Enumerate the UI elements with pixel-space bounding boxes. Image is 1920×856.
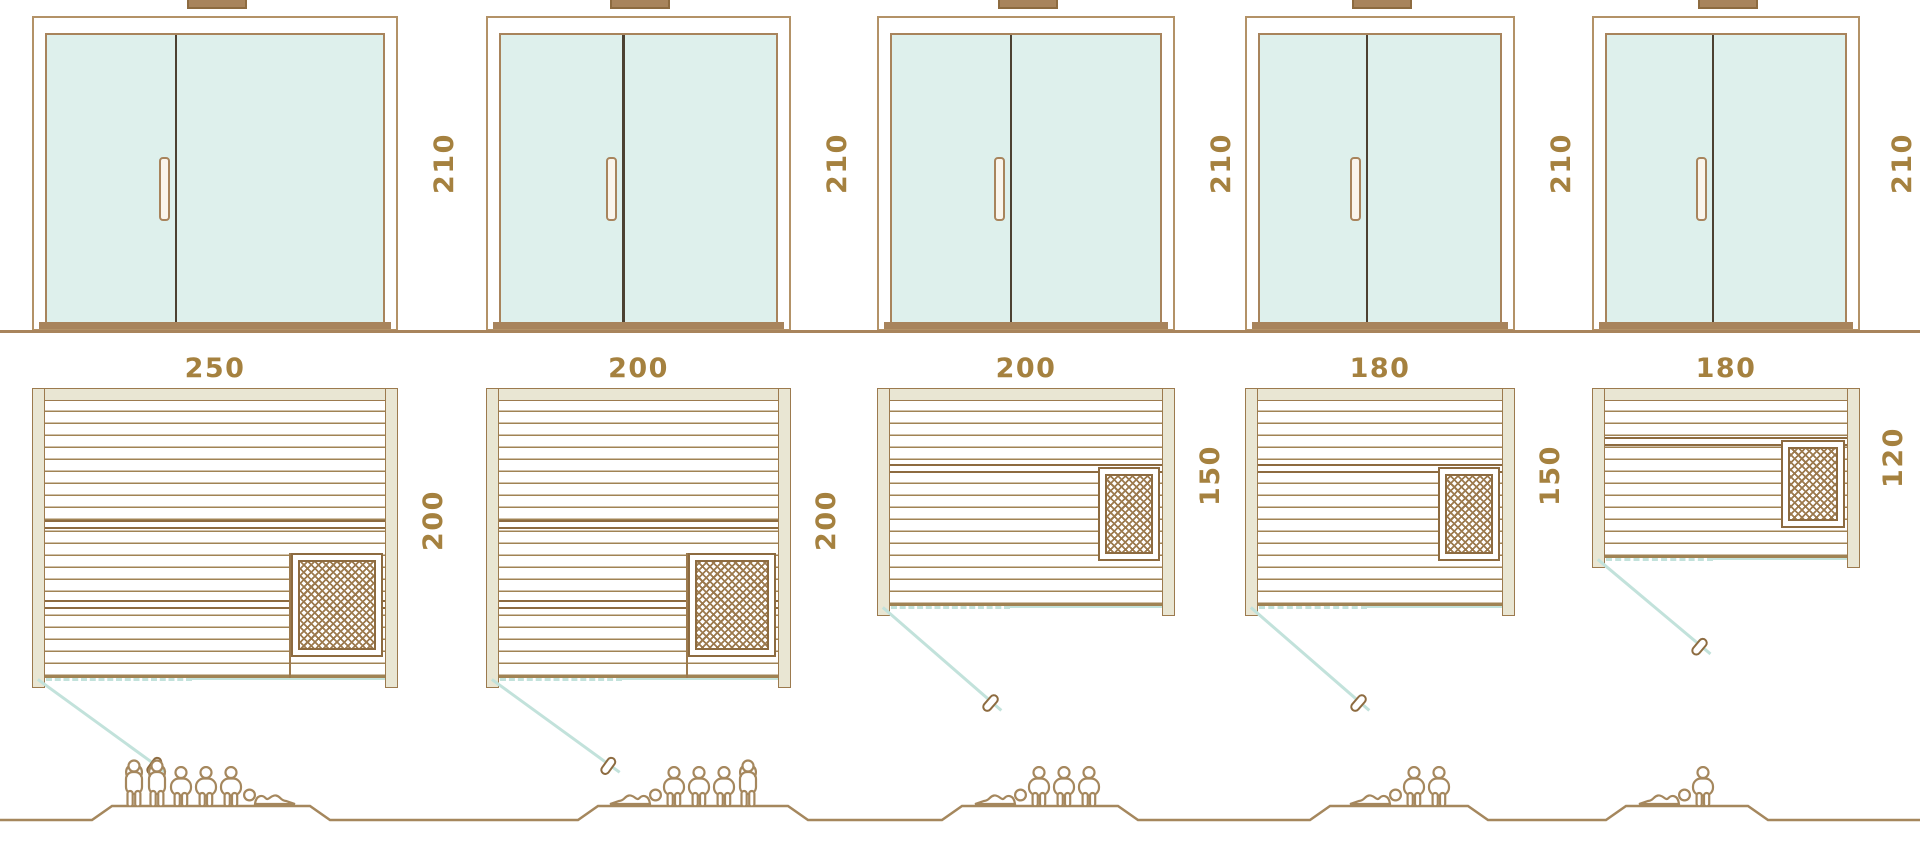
door-handle-icon [1349,692,1370,714]
heater-icon [291,553,383,657]
person-sitting-icon [1688,766,1718,807]
capacity-group-1 [120,760,299,807]
plan-width-dimension: 250 [32,353,398,384]
plan-depth-dimension: 120 [1878,427,1909,488]
door-threshold [1599,322,1853,329]
wall [877,388,1175,401]
roof-cap [998,0,1058,9]
door-swing-line [1250,606,1370,711]
person-standing-icon [734,759,762,807]
door-swing-line [491,678,620,773]
door-opening-dashed [1259,606,1367,609]
door-height-dimension: 210 [1887,133,1918,194]
door-opening-line [1713,558,1847,561]
person-sitting-icon [1074,766,1104,807]
wall [1245,388,1515,401]
door-glass [1258,33,1502,322]
door-divider [1366,35,1369,322]
door-threshold [493,322,784,329]
person-lying-icon [606,786,664,807]
door-height-dimension: 210 [822,133,853,194]
wall [1592,388,1860,401]
capacity-group-2 [606,760,762,807]
door-handle-icon [981,692,1002,714]
plan-width-dimension: 180 [1592,353,1860,384]
door-threshold [884,322,1168,329]
door-handle-icon [1696,157,1707,221]
door-handle-icon [1690,635,1711,657]
door-opening-dashed [1606,558,1713,561]
door-frame [486,16,791,331]
door-frame [877,16,1175,331]
heater-grid [1445,474,1493,554]
bench-edge [44,520,386,529]
wall [32,388,45,688]
wall [1502,388,1515,616]
wall [1162,388,1175,616]
heater-grid [1105,474,1153,554]
door-opening-line [192,678,385,681]
door-glass [499,33,778,322]
floor-plan-3: 200 150 [877,388,1175,606]
plan-depth-dimension: 150 [1535,445,1566,506]
capacity-group-3 [971,760,1104,807]
door-handle-icon [606,157,617,221]
door-opening-dashed [500,678,622,681]
door-handle-icon [1350,157,1361,221]
plan-depth-dimension: 200 [811,490,842,551]
door-elevation-1 [32,0,398,332]
door-threshold [39,322,391,329]
door-height-dimension: 210 [1206,133,1237,194]
sauna-size-diagram: 210 210 210 [0,0,1920,856]
door-glass [45,33,385,322]
wall [778,388,791,688]
door-divider [1010,35,1013,322]
door-frame [1592,16,1860,331]
door-swing-line [1597,558,1711,654]
door-frame [1245,16,1515,331]
door-opening-line [1010,606,1162,609]
person-lying-icon [1346,786,1404,807]
door-elevation-3 [877,0,1175,332]
wall [1847,388,1860,568]
door-swing-line [882,606,1002,711]
floor-plan-2: 200 200 [486,388,791,678]
capacity-group-4 [1346,760,1454,807]
door-opening-line [1367,606,1502,609]
door-opening-dashed [891,606,1010,609]
person-lying-icon [1635,786,1693,807]
bench-edge [498,520,779,529]
door-divider [622,35,625,322]
wall [877,388,890,616]
person-lying-icon [241,786,299,807]
floor-plan-4: 180 150 [1245,388,1515,606]
floor-plan-1: 250 200 [32,388,398,678]
door-frame [32,16,398,331]
door-divider [1712,35,1715,322]
wall [32,388,398,401]
heater-grid [1788,447,1838,521]
door-glass [1605,33,1847,322]
heater-grid [298,560,376,650]
plan-depth-dimension: 150 [1195,445,1226,506]
wall [486,388,791,401]
door-elevation-2 [486,0,791,332]
plan-width-dimension: 200 [877,353,1175,384]
floor-plan-5: 180 120 [1592,388,1860,558]
door-opening-line [622,678,778,681]
door-divider [175,35,178,322]
roof-cap [1698,0,1758,9]
heater-icon [1438,467,1500,561]
door-threshold [1252,322,1508,329]
plan-depth-dimension: 200 [418,490,449,551]
roof-cap [610,0,670,9]
heater-icon [1781,440,1845,528]
door-handle-icon [994,157,1005,221]
plan-width-dimension: 180 [1245,353,1515,384]
door-height-dimension: 210 [1546,133,1577,194]
door-elevation-5 [1592,0,1860,332]
heater-icon [1098,467,1160,561]
roof-cap [187,0,247,9]
door-opening-dashed [46,678,192,681]
wall [486,388,499,688]
wall [1592,388,1605,568]
wall [1245,388,1258,616]
plan-width-dimension: 200 [486,353,791,384]
door-handle-icon [159,157,170,221]
door-glass [890,33,1162,322]
door-elevation-4 [1245,0,1515,332]
ground-line [0,330,1920,333]
heater-icon [688,553,776,657]
door-height-dimension: 210 [429,133,460,194]
person-sitting-icon [1424,766,1454,807]
wall [385,388,398,688]
capacity-group-5 [1635,760,1718,807]
heater-grid [695,560,769,650]
person-lying-icon [971,786,1029,807]
roof-cap [1352,0,1412,9]
